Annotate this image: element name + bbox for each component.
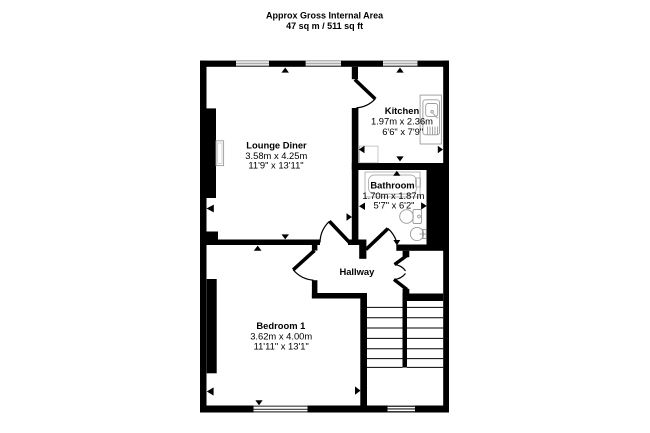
svg-text:11'11" x 13'1": 11'11" x 13'1"	[254, 341, 309, 352]
svg-text:Bedroom 1: Bedroom 1	[256, 320, 305, 331]
svg-text:47 sq m / 511 sq ft: 47 sq m / 511 sq ft	[286, 21, 363, 31]
svg-text:Approx Gross Internal Area: Approx Gross Internal Area	[266, 11, 384, 21]
svg-text:Kitchen: Kitchen	[385, 105, 420, 116]
svg-text:5'7" x 6'2": 5'7" x 6'2"	[374, 200, 415, 211]
svg-text:Hallway: Hallway	[339, 266, 375, 277]
svg-text:Bathroom: Bathroom	[370, 179, 414, 190]
svg-text:Lounge Diner: Lounge Diner	[246, 140, 307, 151]
svg-text:11'9" x 13'11": 11'9" x 13'11"	[248, 160, 303, 171]
svg-text:6'6" x 7'9": 6'6" x 7'9"	[382, 126, 423, 137]
